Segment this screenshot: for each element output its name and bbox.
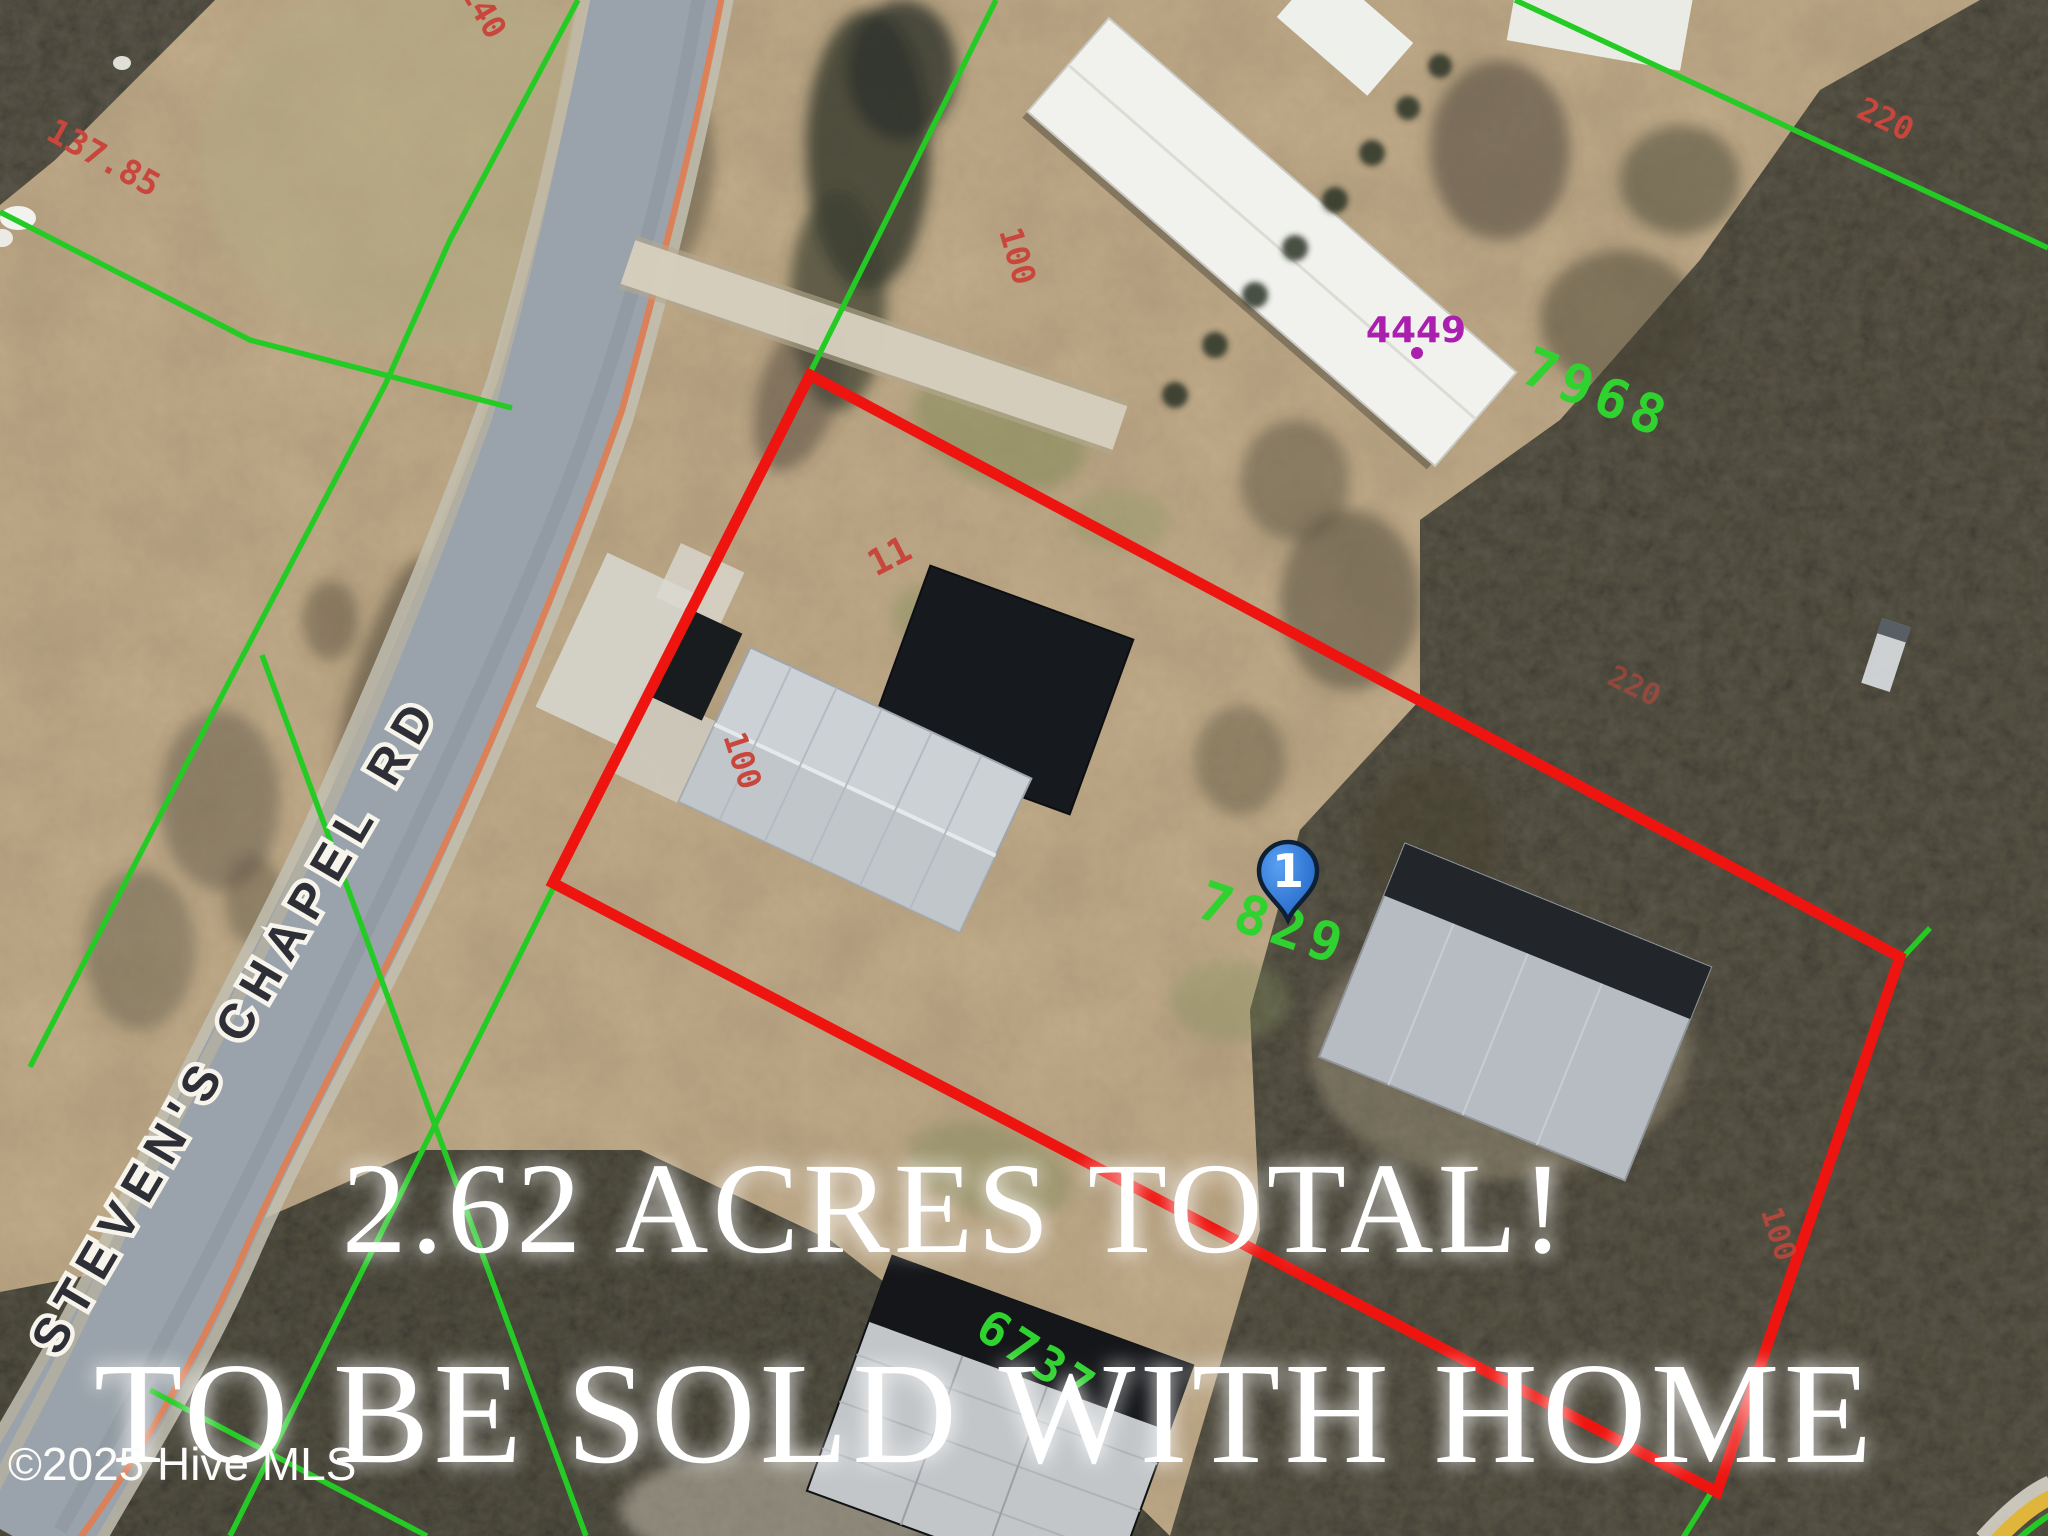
address-dot-4449	[1411, 347, 1423, 359]
caption-sold: TO BE SOLD WITH HOME	[94, 1334, 1876, 1494]
aerial-parcel-map: 137.85 140 100 11 100 220 220 100 7968 7…	[0, 0, 2048, 1536]
map-canvas: 137.85 140 100 11 100 220 220 100 7968 7…	[0, 0, 2048, 1536]
caption-acres: 2.62 ACRES TOTAL!	[342, 1137, 1569, 1281]
address-label-4449: 4449	[1366, 310, 1466, 351]
copyright-watermark: ©2025 Hive MLS	[8, 1438, 356, 1490]
marker-number: 1	[1272, 844, 1304, 898]
